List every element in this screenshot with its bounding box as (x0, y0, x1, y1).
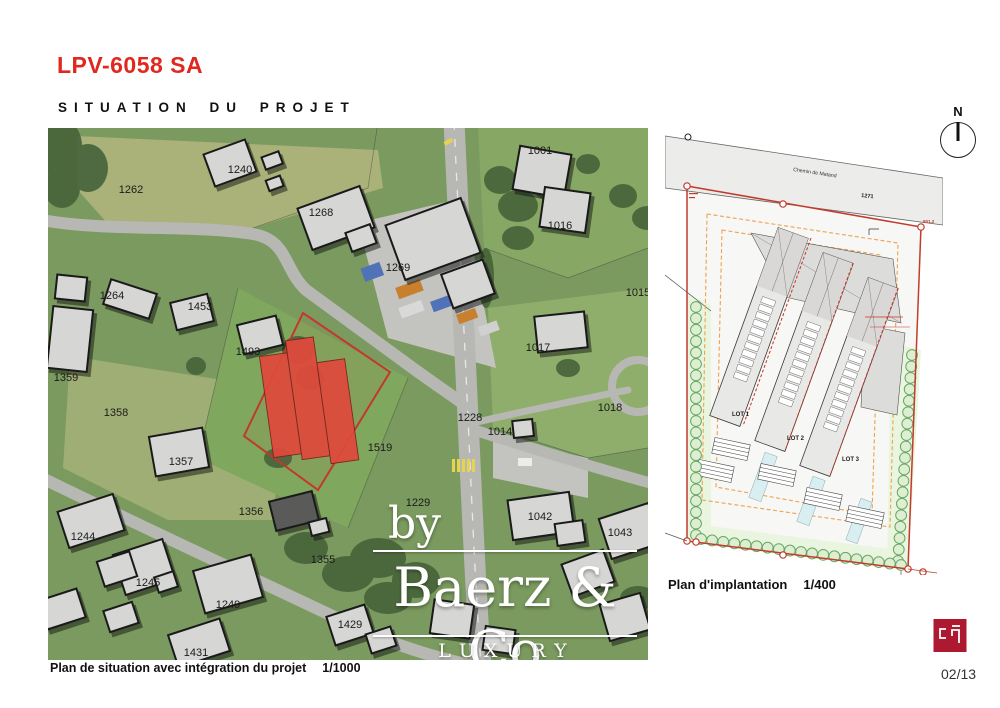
page-number: 02/13 (941, 666, 976, 682)
parcel-label: 1042 (528, 511, 552, 523)
page-title: LPV-6058 SA (57, 52, 203, 79)
lot2-label: LOT 2 (787, 436, 805, 442)
parcel-label: 1043 (608, 527, 632, 539)
watermark-tagline: LUXURY HOMES (371, 640, 643, 660)
parcel-label: 1240 (228, 164, 252, 176)
site-plan-graphic: Chemin de Matand 1271 (665, 115, 943, 575)
plan-caption-text: Plan d'implantation (668, 577, 787, 592)
parcel-label: 1357 (169, 456, 193, 468)
parcel-label: 1358 (104, 407, 128, 419)
parcel-label: 1001 (528, 145, 552, 157)
north-label: N (953, 104, 962, 119)
lot1-label: LOT 1 (732, 412, 750, 418)
north-arrow-icon: N (936, 100, 980, 172)
parcel-label: 1244 (71, 531, 95, 543)
cp-monogram-logo-icon (933, 618, 967, 654)
map-caption-scale: 1/1000 (322, 661, 360, 675)
site-plan: Chemin de Matand 1271 (665, 115, 943, 575)
parcel-label: 1018 (598, 402, 622, 414)
parcel-label: 1017 (526, 342, 550, 354)
parcel-label: 1519 (368, 442, 392, 454)
aerial-map: 1262124012681269100110161015126414531493… (48, 128, 648, 660)
parcel-label: 1269 (386, 262, 410, 274)
map-caption-text: Plan de situation avec intégration du pr… (50, 661, 306, 675)
parcel-label: 1429 (338, 619, 362, 631)
parcel-label: 1249 (216, 599, 240, 611)
parcel-label: 1245 (136, 577, 160, 589)
parcel-label: 1016 (548, 220, 572, 232)
watermark-rule-bottom (373, 635, 637, 637)
parcel-label: 1014 (488, 426, 512, 438)
page-subtitle: SITUATION DU PROJET (58, 100, 356, 115)
watermark-by: by (388, 498, 441, 549)
parcel-label: 1356 (239, 506, 263, 518)
plan-caption-scale: 1/400 (803, 577, 836, 592)
parcel-label: 1493 (236, 346, 260, 358)
parcel-label: 1359 (54, 372, 78, 384)
plan-caption: Plan d'implantation 1/400 (668, 577, 836, 592)
map-caption: Plan de situation avec intégration du pr… (50, 661, 361, 675)
parcel-label: 1228 (458, 412, 482, 424)
parcel-label: 1268 (309, 207, 333, 219)
parcel-label: 1355 (311, 554, 335, 566)
parcel-label: 1264 (100, 290, 124, 302)
parcel-label: 1015 (626, 287, 648, 299)
plan-corner-note: 801.2 (923, 219, 935, 224)
parcel-label: 1431 (184, 647, 208, 659)
parcel-label: 1262 (119, 184, 143, 196)
parcel-label: 1453 (188, 301, 212, 313)
watermark-rule-top (373, 550, 637, 552)
lot3-label: LOT 3 (842, 457, 860, 463)
